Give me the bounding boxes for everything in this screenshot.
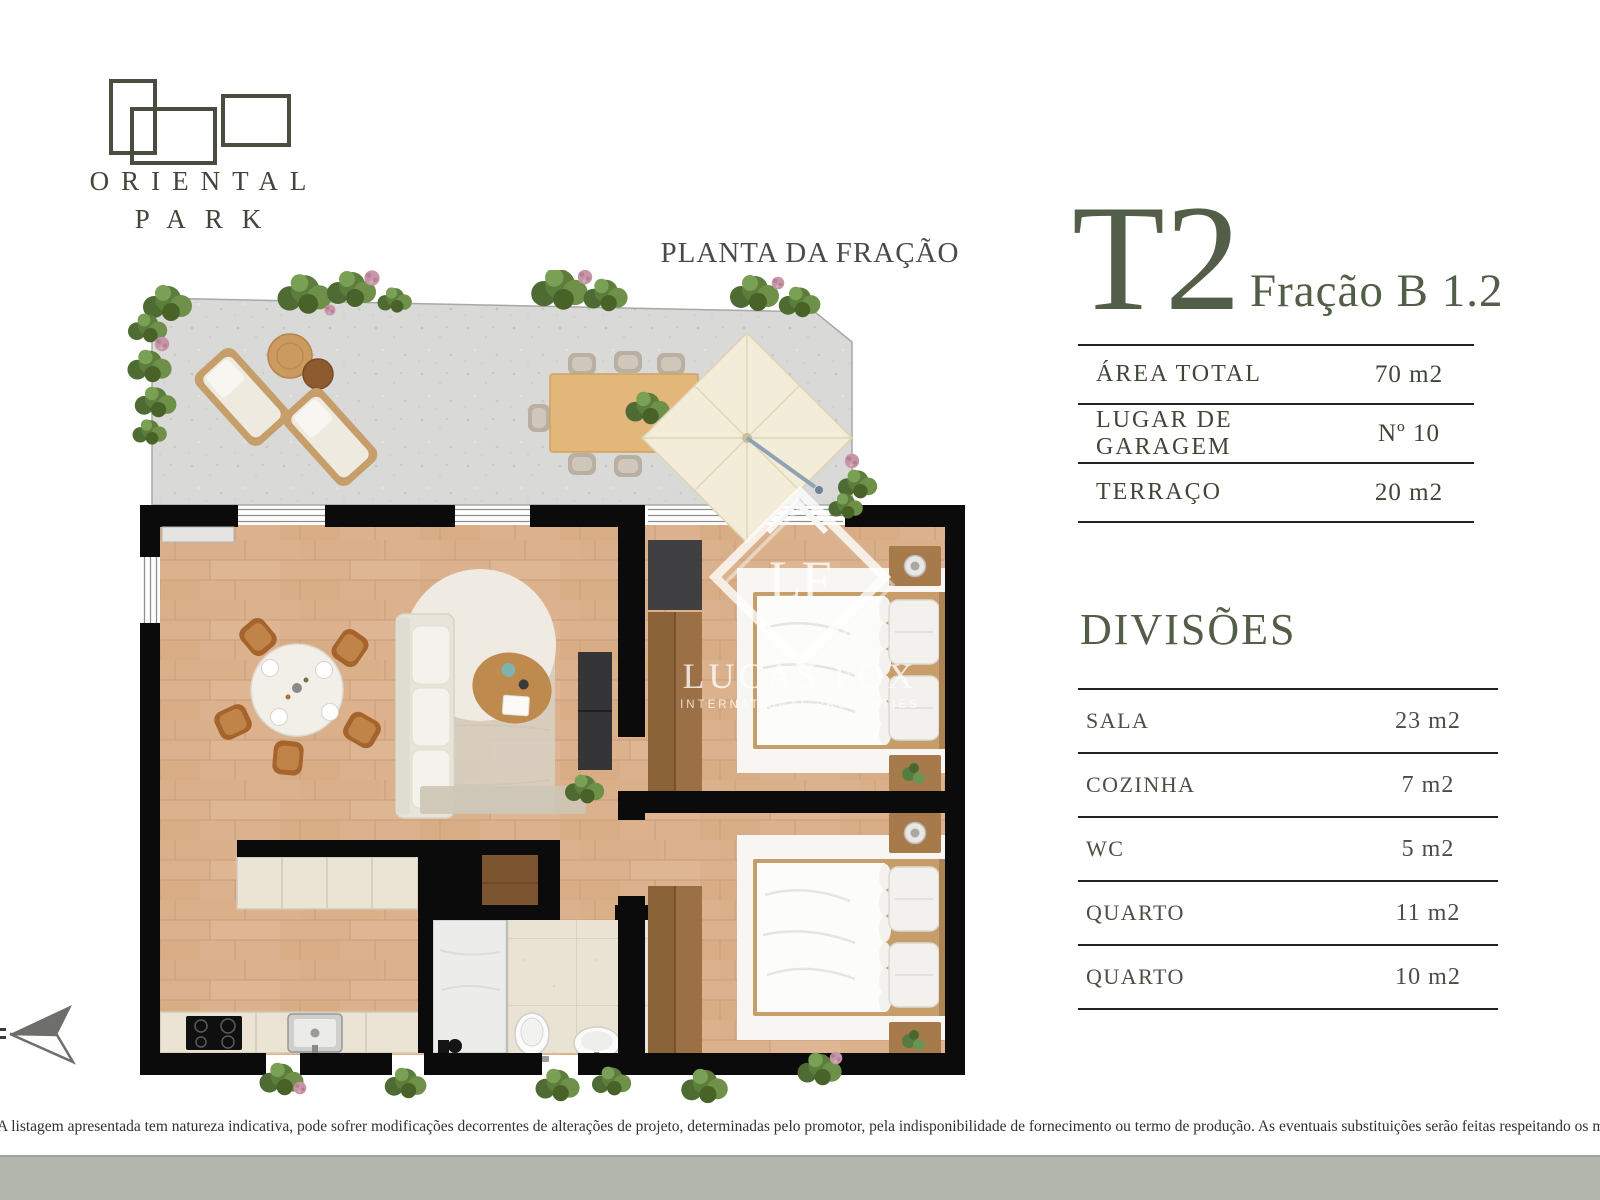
row-label: SALA [1078,708,1358,734]
divisions-title: DIVISÕES [1080,604,1296,655]
brand-name: ORIENTAL PARK [70,166,326,235]
doormat [420,786,586,814]
table-row: QUARTO 11 m2 [1078,880,1498,944]
watermark-subtitle: INTERNATIONAL PROPERTIES [680,699,920,711]
brand-name-line2: PARK [70,204,326,235]
double-bed [737,813,950,1062]
table-row: SALA 23 m2 [1078,688,1498,752]
watermark-name: LUCAS FOX [682,656,917,696]
row-value: 11 m2 [1358,900,1498,927]
disclaimer-text: A listagem apresentada tem natureza indi… [0,1118,1600,1150]
row-label: COZINHA [1078,772,1358,798]
summary-table: ÁREA TOTAL 70 m2 LUGAR DE GARAGEM Nº 10 … [1078,344,1474,523]
row-label: ÁREA TOTAL [1078,361,1344,388]
logo-rectangle-icon [130,107,217,165]
row-label: QUARTO [1078,900,1358,926]
shower [433,920,507,1054]
table-row: WC 5 m2 [1078,816,1498,880]
brand-name-line1: ORIENTAL [70,166,326,197]
dining-chair [272,740,305,776]
tv-console [578,652,612,770]
row-value: 5 m2 [1358,836,1498,863]
row-value: 10 m2 [1358,964,1498,991]
watermark-initials: LF [768,550,831,610]
row-value: Nº 10 [1344,420,1474,448]
table-row: ÁREA TOTAL 70 m2 [1078,344,1474,403]
row-label: LUGAR DE GARAGEM [1078,407,1344,461]
table-row: LUGAR DE GARAGEM Nº 10 [1078,403,1474,462]
kitchen-sink [288,1014,342,1054]
row-value: 7 m2 [1358,772,1498,799]
row-label: TERRAÇO [1078,479,1344,506]
plan-title: PLANTA DA FRAÇÃO [650,237,970,270]
unit-type-label: T2 [1072,182,1241,334]
divisions-table: SALA 23 m2 COZINHA 7 m2 WC 5 m2 QUARTO 1… [1078,688,1498,1010]
row-label: WC [1078,836,1358,862]
table-row: QUARTO 10 m2 [1078,944,1498,1010]
table-row: COZINHA 7 m2 [1078,752,1498,816]
row-label: QUARTO [1078,964,1358,990]
bathroom [433,920,648,1063]
cabinet [648,540,702,610]
row-value: 20 m2 [1344,479,1474,507]
cooktop [186,1016,242,1050]
table-row: TERRAÇO 20 m2 [1078,462,1474,523]
row-value: 70 m2 [1344,361,1474,389]
brochure-page: ORIENTAL PARK PLANTA DA FRAÇÃO T2 Fração… [0,0,1600,1200]
logo-rectangle-icon [221,94,291,147]
unit-fraction-label: Fração B 1.2 [1250,264,1503,318]
floor-plan: LF LUCAS FOX INTERNATIONAL PROPERTIES [0,270,1060,1110]
north-arrow-icon [0,1005,73,1062]
footer-band [0,1155,1600,1200]
side-table [303,359,333,389]
row-value: 23 m2 [1358,708,1498,735]
